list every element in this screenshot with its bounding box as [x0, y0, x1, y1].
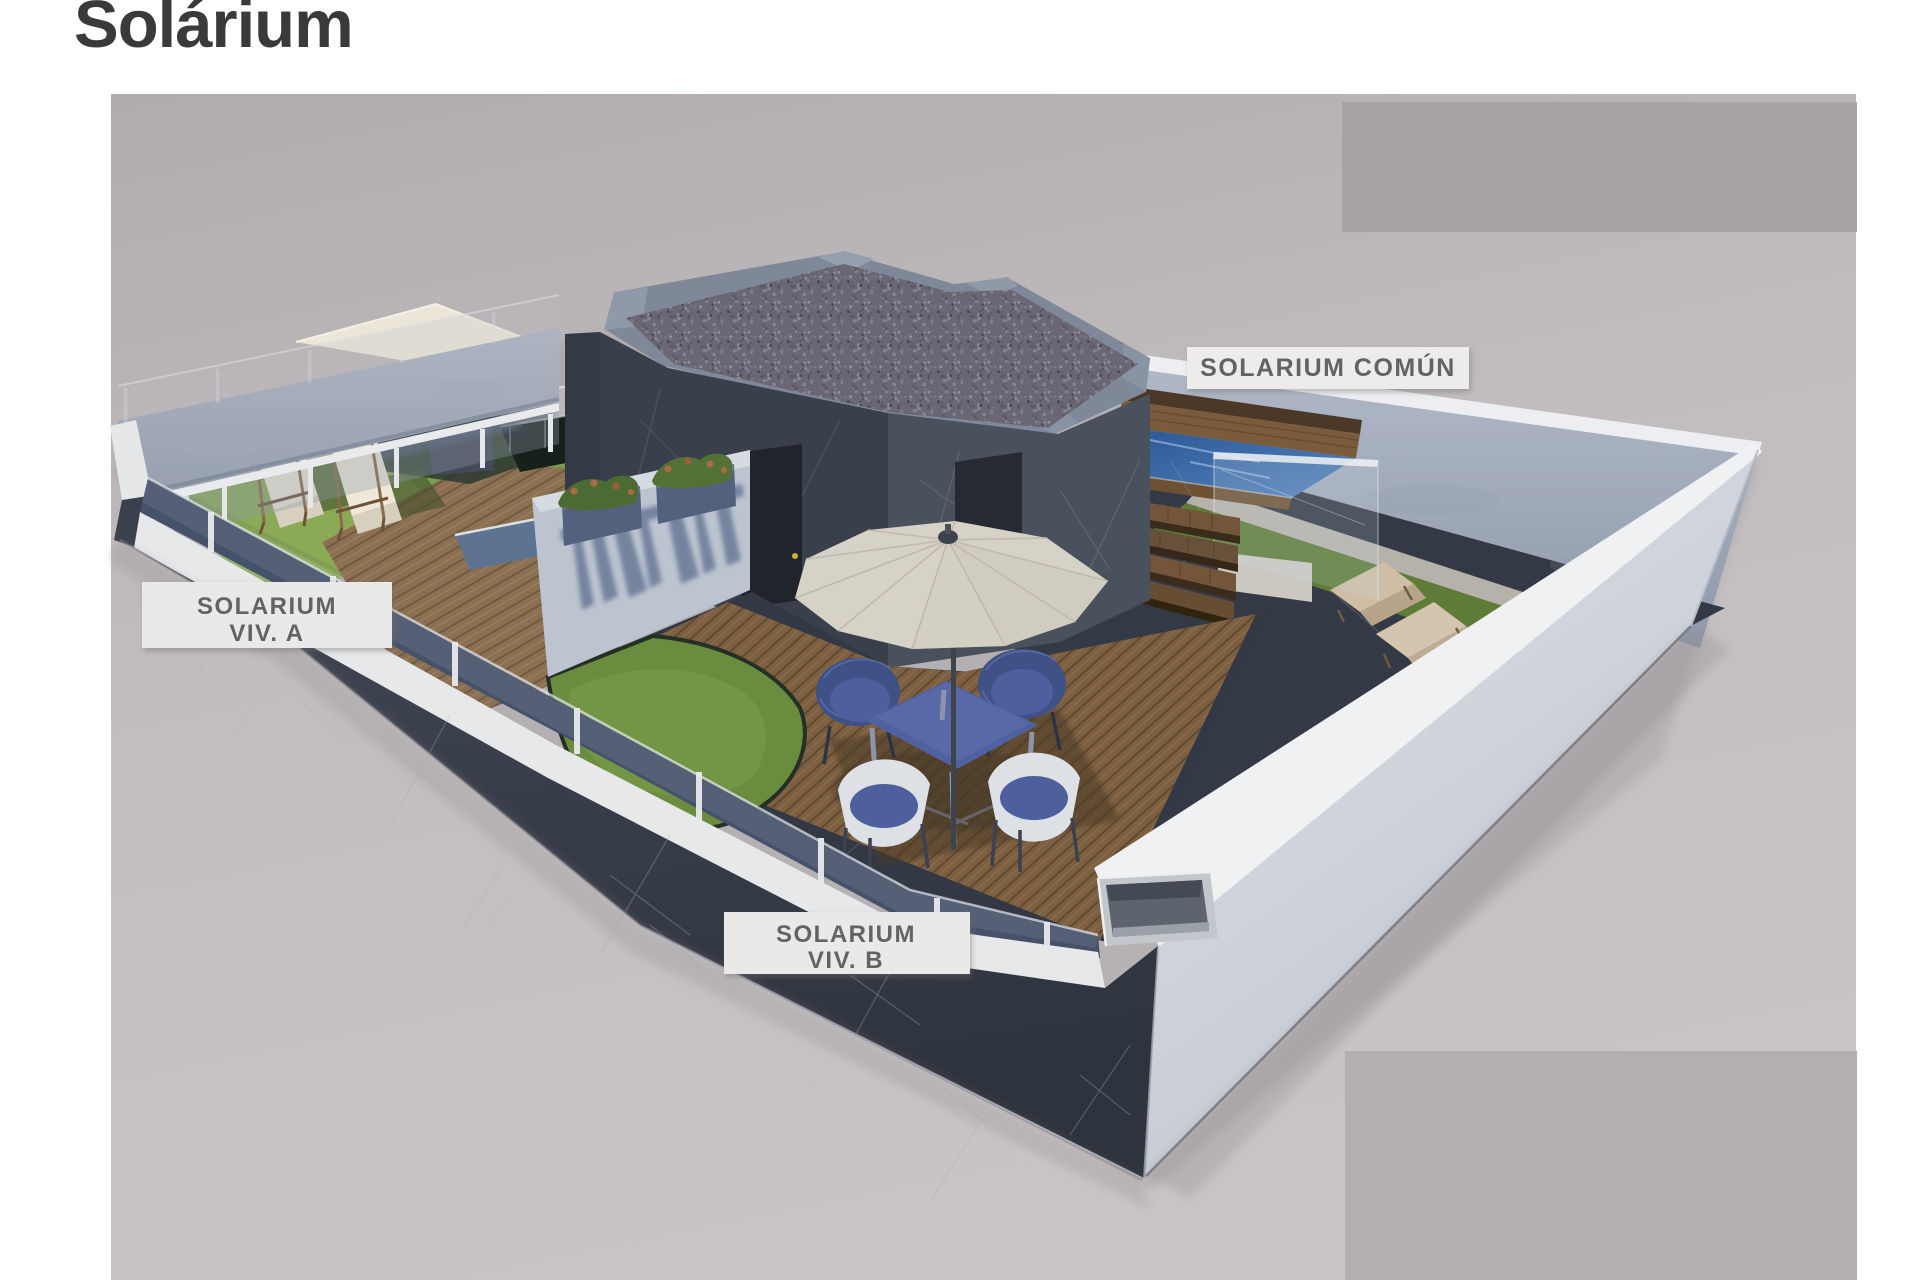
svg-text:Solárium: Solárium — [74, 0, 353, 62]
svg-text:SOLARIUM: SOLARIUM — [776, 921, 916, 948]
svg-text:VIV. A: VIV. A — [229, 620, 304, 647]
svg-text:SOLARIUM COMÚN: SOLARIUM COMÚN — [1200, 352, 1456, 382]
svg-text:SOLARIUM: SOLARIUM — [197, 593, 337, 620]
svg-text:VIV. B: VIV. B — [808, 947, 884, 974]
